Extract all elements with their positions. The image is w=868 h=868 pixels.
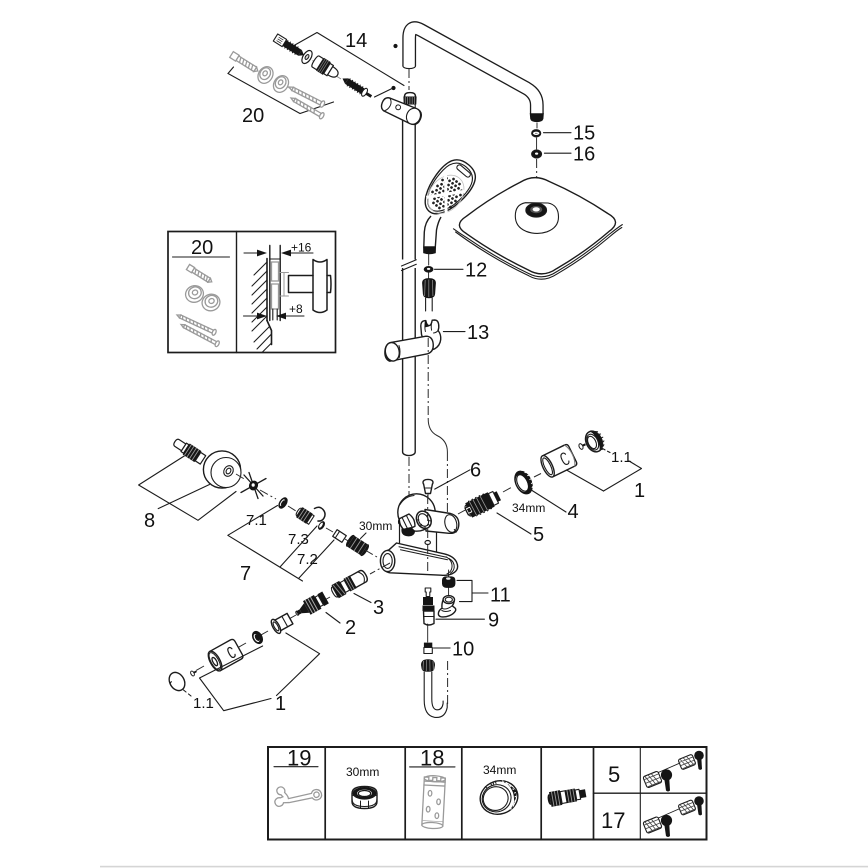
svg-text:20: 20 — [191, 237, 213, 259]
svg-text:+16: +16 — [291, 241, 312, 255]
svg-text:16: 16 — [573, 144, 595, 166]
svg-text:15: 15 — [573, 123, 595, 145]
svg-text:30mm: 30mm — [346, 765, 379, 779]
svg-text:34mm: 34mm — [512, 501, 545, 515]
svg-text:7: 7 — [240, 563, 251, 585]
svg-text:8: 8 — [144, 510, 155, 532]
svg-text:12: 12 — [465, 260, 487, 282]
svg-text:13: 13 — [467, 322, 489, 344]
svg-text:20: 20 — [242, 105, 264, 127]
svg-text:1: 1 — [634, 480, 645, 502]
svg-text:11: 11 — [490, 585, 511, 607]
svg-text:10: 10 — [452, 639, 474, 661]
svg-text:30mm: 30mm — [359, 519, 392, 533]
svg-text:2: 2 — [345, 617, 356, 639]
svg-text:+8: +8 — [289, 302, 303, 316]
svg-text:7.2: 7.2 — [297, 551, 318, 568]
svg-text:34mm: 34mm — [483, 763, 516, 777]
svg-text:4: 4 — [568, 501, 579, 523]
svg-text:7.1: 7.1 — [246, 512, 267, 529]
svg-text:17: 17 — [601, 808, 625, 833]
svg-text:5: 5 — [608, 762, 620, 787]
svg-text:1.1: 1.1 — [611, 449, 632, 466]
svg-text:7.3: 7.3 — [288, 531, 309, 548]
svg-text:1: 1 — [275, 693, 286, 715]
svg-text:9: 9 — [488, 610, 499, 632]
svg-text:1.1: 1.1 — [193, 695, 214, 712]
svg-text:14: 14 — [345, 30, 367, 52]
svg-text:5: 5 — [533, 524, 544, 546]
svg-text:6: 6 — [470, 460, 481, 482]
svg-text:3: 3 — [373, 597, 384, 619]
